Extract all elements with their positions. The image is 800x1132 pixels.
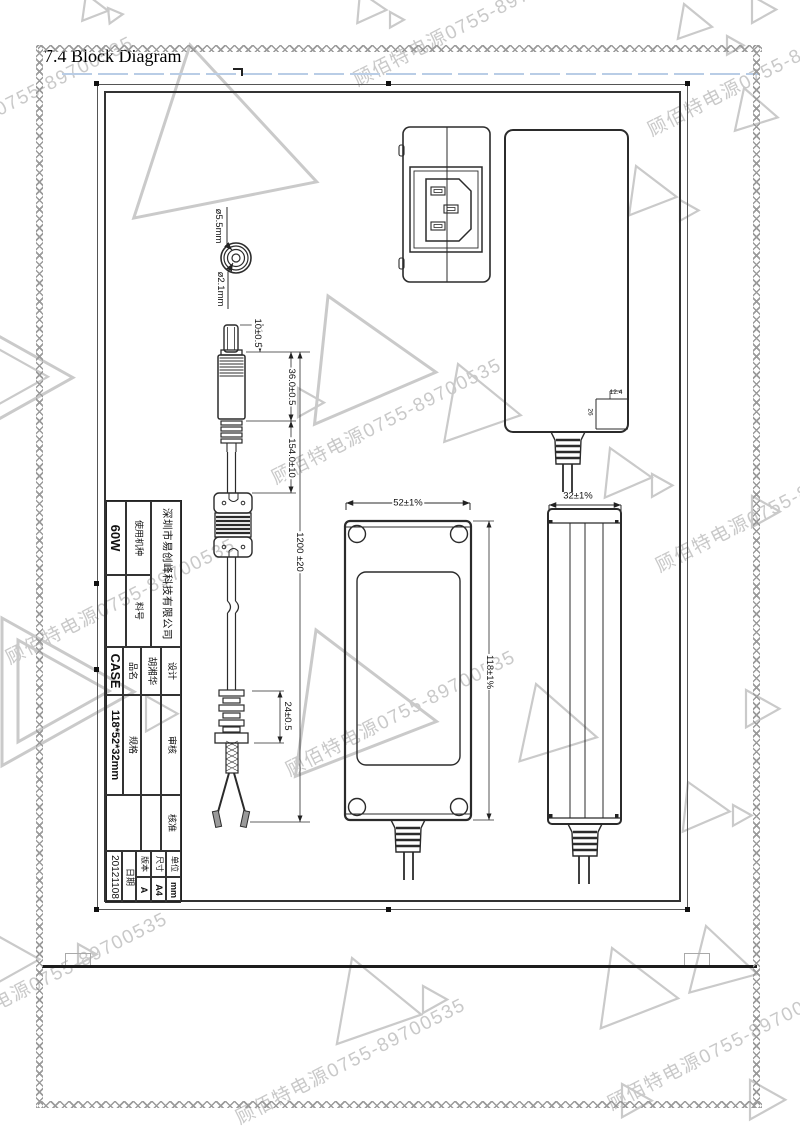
dim-plug-length: 36.0±0.5 bbox=[286, 368, 296, 407]
dim-case-width: 52±1% bbox=[392, 498, 424, 508]
marquee-border-top bbox=[38, 45, 762, 52]
dim-case-length: 118±1% bbox=[484, 654, 494, 690]
design-value: 胡湘华 bbox=[141, 647, 161, 695]
dim-cord-exit-width: 12.4 bbox=[610, 390, 623, 397]
marquee-border-bottom bbox=[38, 1101, 762, 1108]
marquee-border-left bbox=[36, 45, 43, 1108]
frame-edge-mark bbox=[94, 667, 99, 672]
dim-plug-to-ferrite: 154.0±10 bbox=[286, 437, 296, 479]
approve-value bbox=[141, 795, 161, 851]
size-label: 尺寸 bbox=[151, 851, 166, 877]
unit-label: 单位 bbox=[166, 851, 181, 877]
product-label: 品名 bbox=[123, 647, 141, 695]
adapter-side-view bbox=[505, 130, 628, 492]
ac-inlet-view bbox=[399, 127, 490, 282]
frame-corner-mark bbox=[94, 81, 99, 86]
model-value: 60W bbox=[105, 501, 126, 575]
frame-corner-mark bbox=[94, 907, 99, 912]
product-value: CASE bbox=[105, 647, 123, 695]
title-block: 深圳市易创峰科技有限公司 使用机种 料号 60W 设计 胡湘华 品名 CASE … bbox=[106, 500, 182, 902]
review-label: 审核 bbox=[161, 695, 181, 795]
anchor-mark-icon bbox=[233, 68, 243, 76]
dim-bushing-length: 24±0.5 bbox=[282, 701, 292, 732]
part-no-label: 料号 bbox=[126, 575, 151, 647]
document-page: { "document": { "section_title": "7.4 Bl… bbox=[0, 0, 800, 1132]
review-value bbox=[141, 695, 161, 795]
dim-plug-outer-dia: ø5.5mm bbox=[213, 208, 223, 245]
date-label: 日期 bbox=[122, 851, 136, 903]
spec-value: 118*52*32mm bbox=[105, 695, 123, 795]
part-no-value bbox=[105, 575, 126, 647]
frame-corner-mark bbox=[685, 907, 690, 912]
version-value: A bbox=[136, 877, 151, 903]
frame-edge-mark bbox=[94, 581, 99, 586]
design-label: 设计 bbox=[161, 647, 181, 695]
dim-plug-inner-dia: ø2.1mm bbox=[215, 271, 225, 308]
empty-cell bbox=[105, 795, 141, 851]
frame-center-mark bbox=[386, 81, 391, 86]
dim-tip-length: 10±0.5 bbox=[252, 318, 262, 349]
marquee-border-right bbox=[753, 45, 760, 1108]
version-label: 版本 bbox=[136, 851, 151, 877]
date-value: 20121108 bbox=[105, 851, 122, 903]
spec-label: 规格 bbox=[123, 695, 141, 795]
dim-cord-exit-height: 26 bbox=[586, 408, 593, 415]
dim-cable-total-length: 1200 ±20 bbox=[294, 531, 304, 573]
unit-value: mm bbox=[166, 877, 181, 903]
frame-center-mark bbox=[386, 907, 391, 912]
frame-corner-mark bbox=[685, 81, 690, 86]
bottom-rule bbox=[42, 965, 757, 968]
company-name: 深圳市易创峰科技有限公司 bbox=[151, 501, 181, 647]
size-value: A4 bbox=[151, 877, 166, 903]
approve-label: 核准 bbox=[161, 795, 181, 851]
model-label: 使用机种 bbox=[126, 501, 151, 575]
adapter-profile-view bbox=[548, 505, 621, 884]
adapter-bottom-view bbox=[345, 503, 494, 880]
dim-case-height: 32±1% bbox=[562, 491, 594, 501]
